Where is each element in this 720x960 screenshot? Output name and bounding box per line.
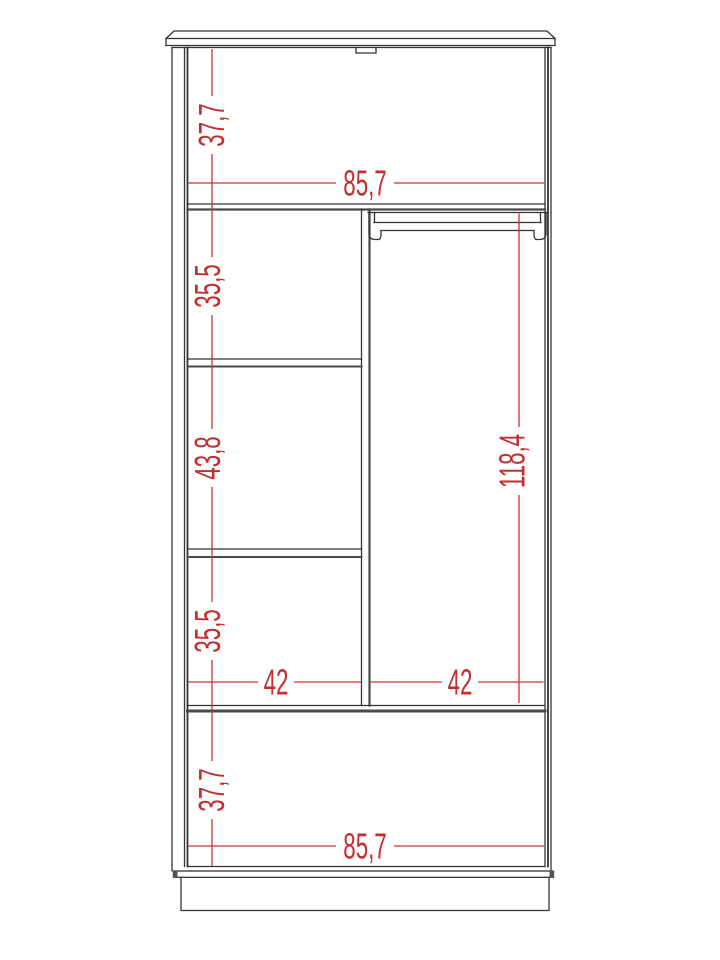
dim-value-right-compartment: 42 (448, 663, 473, 703)
bottom-divider (188, 706, 546, 712)
dim-value-bottom-height: 37,7 (193, 768, 233, 811)
dim-label-lower-shelf: 35,5 (189, 602, 229, 660)
rod-bracket-left (369, 213, 381, 240)
dim-label-bottom-height: 37,7 (193, 761, 233, 819)
center-divider (362, 210, 370, 706)
dim-label-top-width: 85,7 (336, 164, 394, 204)
rod-bracket-right (534, 213, 546, 240)
dim-label-right-section: 118,4 (493, 427, 533, 495)
left-wall (172, 48, 188, 872)
crown-molding (166, 31, 555, 46)
dim-label-right-compartment: 42 (442, 663, 478, 703)
drawing-canvas: 37,7 85,7 35,5 43,8 35,5 118,4 42 (0, 0, 720, 960)
shelf-upper (188, 359, 362, 367)
dim-value-lower-shelf: 35,5 (189, 609, 229, 652)
dim-label-top-height: 37,7 (193, 96, 233, 154)
dim-value-middle-shelf: 43,8 (189, 436, 229, 479)
dim-label-left-compartment: 42 (258, 663, 294, 703)
technical-drawing: 37,7 85,7 35,5 43,8 35,5 118,4 42 (0, 0, 720, 960)
hanging-rod (368, 213, 547, 240)
top-notch (356, 48, 376, 54)
dim-label-bottom-width: 85,7 (336, 827, 394, 867)
right-wall (545, 48, 551, 872)
dim-value-upper-shelf: 35,5 (189, 264, 229, 307)
dim-value-right-section: 118,4 (493, 434, 533, 488)
base-trim (174, 871, 555, 879)
dim-label-middle-shelf: 43,8 (189, 429, 229, 487)
dim-value-bottom-width: 85,7 (343, 827, 386, 867)
dim-value-top-width: 85,7 (343, 164, 386, 204)
dim-value-top-height: 37,7 (193, 103, 233, 146)
base-plinth (181, 877, 549, 910)
top-shelf-divider (188, 204, 546, 210)
shelf-lower (188, 549, 362, 557)
dim-value-left-compartment: 42 (264, 663, 289, 703)
dim-label-upper-shelf: 35,5 (189, 257, 229, 315)
